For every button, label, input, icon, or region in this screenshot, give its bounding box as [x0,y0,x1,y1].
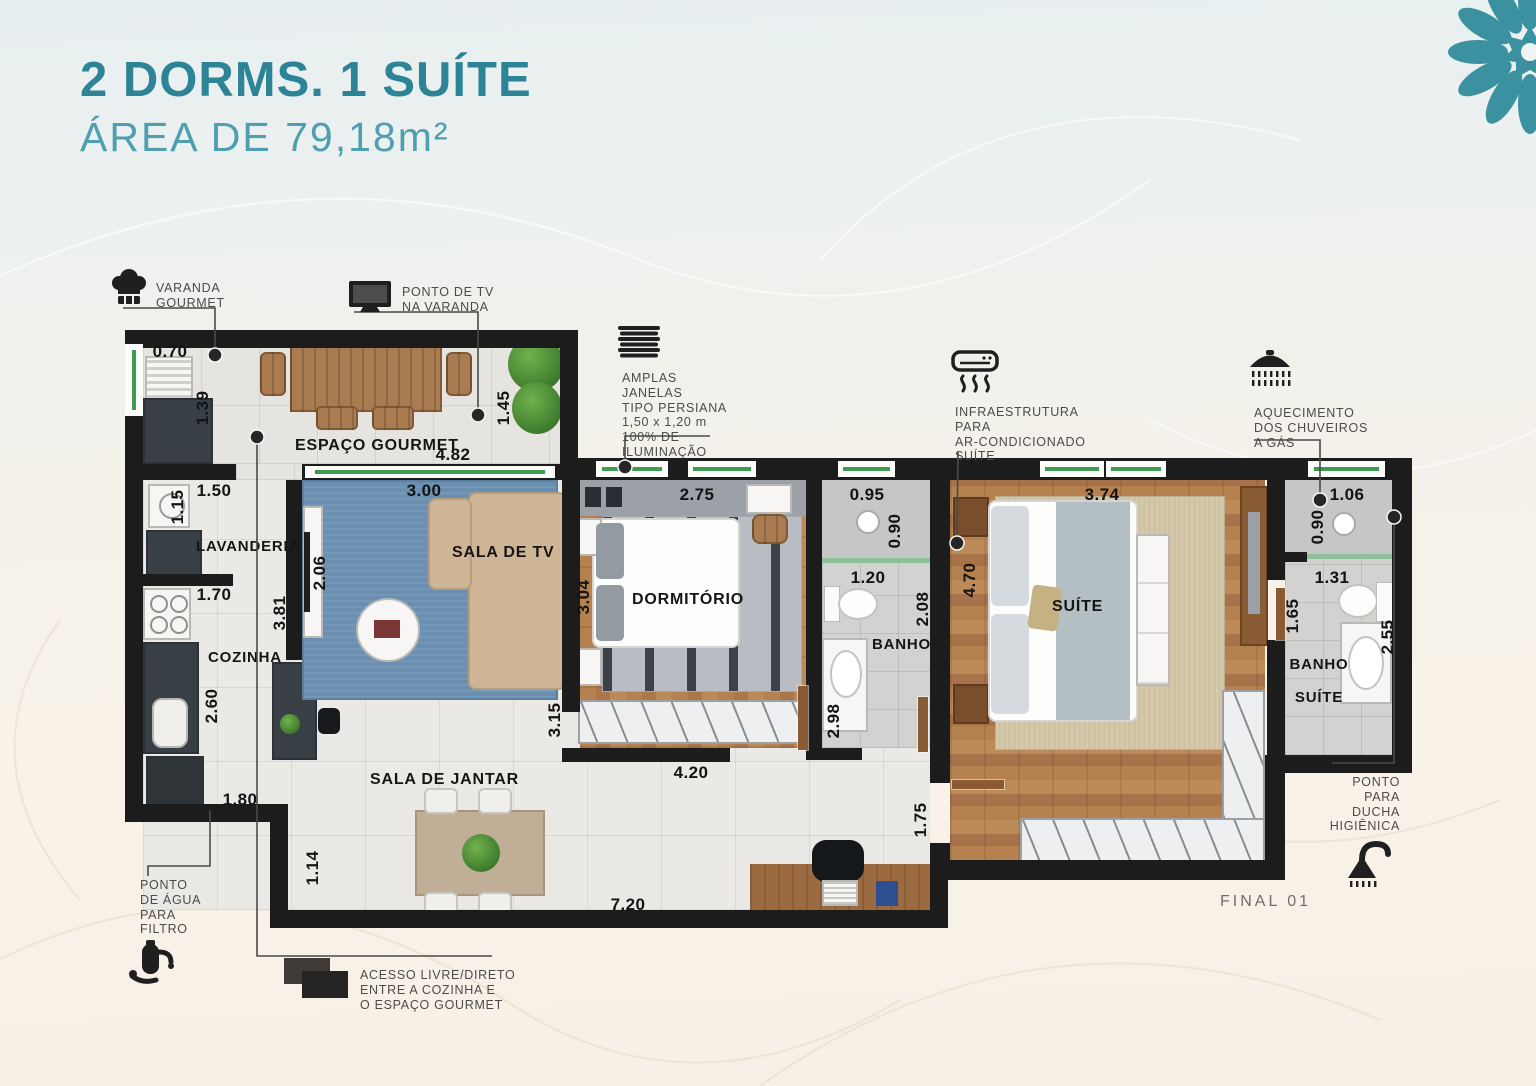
dim-1-31: 1.31 [1315,568,1350,588]
callout-line: VARANDA [156,281,225,296]
window-banho-suite [1308,461,1385,477]
callout-line: 100% DE [622,430,727,445]
suite-tv [1248,512,1260,614]
door-banho [918,697,928,752]
table-plant [462,834,500,872]
island-stool [318,708,340,734]
dim-3-74: 3.74 [1085,485,1120,505]
dorm-pillow [596,585,624,641]
dim-2-75: 2.75 [680,485,715,505]
burner [170,595,188,613]
callout-line: GOURMET [156,296,225,311]
gourmet-table [290,342,442,412]
callout-line: HIGIÊNICA [1316,819,1400,834]
dim-0-90-banho: 0.90 [885,514,905,549]
wall-suite-left-upper [930,458,950,783]
callout-infra-ar: INFRAESTRUTURA PARA AR-CONDICIONADO SUÍT… [955,405,1086,464]
label-dormitorio: DORMITÓRIO [632,591,744,609]
suite-nightstand [953,684,989,724]
magazine [374,620,400,638]
dim-1-45: 1.45 [494,391,514,426]
window-dormitorio-1 [596,461,668,477]
bsuite-toilet [1338,584,1378,618]
door-dormitorio [798,686,808,750]
suite-bench [1136,534,1170,686]
burner [150,595,168,613]
dim-3-81: 3.81 [270,596,290,631]
label-banho-suite-line2: SUÍTE [1284,681,1354,714]
callout-line: FILTRO [140,922,201,937]
hand-shower-icon [1342,838,1394,888]
label-banho: BANHO [872,636,931,653]
dim-0-95: 0.95 [850,485,885,505]
dim-1-14: 1.14 [303,851,323,886]
final-label: FINAL 01 [1220,893,1311,911]
wall-dorm-bottom [562,748,730,762]
callout-line: A GÁS [1254,436,1368,451]
dorm-panel [585,487,601,507]
callout-line: INFRAESTRUTURA [955,405,1086,420]
dim-2-08: 2.08 [913,592,933,627]
wall-suite-bottom [930,860,1285,880]
dim-4-82: 4.82 [436,445,471,465]
wall-bsuite-left-lower [1267,640,1285,773]
dim-2-55: 2.55 [1378,620,1398,655]
water-filter-icon [126,938,180,986]
label-sala-jantar: SALA DE JANTAR [370,771,519,789]
page-title: 2 DORMS. 1 SUÍTE [80,52,532,108]
dorm-chair [752,514,788,544]
callout-line: SUÍTE [955,449,1086,464]
callout-line: NA VARANDA [402,300,494,315]
callout-line: PONTO DE TV [402,285,494,300]
wall-varanda-right [560,330,578,480]
callout-aquecimento: AQUECIMENTO DOS CHUVEIROS A GÁS [1254,406,1368,450]
label-lavanderia: LAVANDERIA [196,538,300,555]
label-banho-suite: BANHO SUÍTE [1284,648,1354,714]
suite-nightstand [953,497,989,537]
callout-amplas-janelas: AMPLAS JANELAS TIPO PERSIANA 1,50 x 1,20… [622,371,727,460]
wall-right [1392,458,1412,773]
grill [145,356,193,400]
callout-line: PARA [140,908,201,923]
callout-line: AQUECIMENTO [1254,406,1368,421]
chef-hat-icon [110,268,148,308]
window-suite-2 [1106,461,1166,477]
callout-line: ILUMINAÇÃO [622,445,727,460]
gourmet-chair [260,352,286,396]
laptop [822,880,858,906]
plant-varanda [512,382,562,434]
callout-ponto-tv: PONTO DE TV NA VARANDA [402,285,494,315]
dim-2-60: 2.60 [202,689,222,724]
banho-toilet [838,588,878,620]
office-chair [812,840,864,882]
dim-1-06: 1.06 [1330,485,1365,505]
brand-flower-logo [1380,0,1536,170]
label-espaco-gourmet: ESPAÇO GOURMET [295,437,459,455]
wall-bsuite-glass-stub [1285,552,1307,562]
suite-pillow [991,614,1029,714]
dim-4-70: 4.70 [960,563,980,598]
wall-tv [286,480,302,660]
banho-shower-head [856,510,880,534]
callout-line: PARA [955,420,1086,435]
callout-line: ACESSO LIVRE/DIRETO [360,968,515,983]
wall-bottom-main [270,910,948,928]
dorm-wardrobe [578,700,806,744]
window-left-wall [125,344,143,416]
wall-banho-left [806,480,822,760]
callout-line: AR-CONDICIONADO [955,435,1086,450]
dining-chair [478,788,512,814]
shower-head-icon [1246,350,1294,394]
suite-pillow [991,506,1029,606]
callout-line: PONTO [140,878,201,893]
callout-line: AMPLAS [622,371,727,386]
banho-glass [822,558,930,563]
page-subtitle: ÁREA DE 79,18m² [80,114,450,161]
dim-7-20: 7.20 [611,895,646,915]
window-banho [838,461,895,477]
callout-ducha: PONTO PARA DUCHA HIGIÊNICA [1316,775,1400,834]
label-suite: SUÍTE [1052,598,1103,616]
callout-acesso: ACESSO LIVRE/DIRETO ENTRE A COZINHA E O … [360,968,515,1012]
dim-3-04: 3.04 [574,580,594,615]
label-cozinha: COZINHA [208,649,282,666]
banho-basin [830,650,862,698]
callout-line: PARA [1316,790,1400,805]
island-plant [280,714,300,734]
window-dormitorio-2 [688,461,756,477]
opening-cozinha-gourmet [236,464,302,480]
callout-varanda-gourmet: VARANDA GOURMET [156,281,225,311]
burner [150,616,168,634]
dim-1-65: 1.65 [1283,599,1303,634]
suite-wardrobe-bottom [1020,818,1265,862]
callout-line: O ESPAÇO GOURMET [360,998,515,1013]
dim-1-75: 1.75 [911,803,931,838]
air-conditioner-icon [951,350,999,394]
dim-1-50: 1.50 [197,481,232,501]
wall-banho-bottom [812,748,862,760]
dim-3-00: 3.00 [407,481,442,501]
callout-agua-filtro: PONTO DE ÁGUA PARA FILTRO [140,878,201,937]
burner [170,616,188,634]
sofa [468,492,566,690]
dim-3-15: 3.15 [545,703,565,738]
kitchen-sink [152,698,188,748]
wall-kitchen-bottom [125,804,285,822]
free-access-icon [284,958,350,1002]
dim-0-90-bsuite: 0.90 [1308,510,1328,545]
callout-line: DE ÁGUA [140,893,201,908]
dim-1-15: 1.15 [168,490,188,525]
dorm-pillow [596,523,624,579]
callout-line: TIPO PERSIANA [622,401,727,416]
callout-line: ENTRE A COZINHA E [360,983,515,998]
laundry-cabinet [146,530,202,576]
callout-line: 1,50 x 1,20 m [622,415,727,430]
wall-bsuite-bottom [1265,755,1412,773]
dim-4-20: 4.20 [674,763,709,783]
door-suite [952,780,1004,789]
callout-line: JANELAS [622,386,727,401]
callout-line: PONTO [1316,775,1400,790]
dim-1-80: 1.80 [223,790,258,810]
dim-1-70: 1.70 [197,585,232,605]
label-sala-tv: SALA DE TV [452,544,555,562]
gourmet-bench [372,406,414,430]
floor-plan: ESPAÇO GOURMET LAVANDERIA COZINHA SALA D… [0,0,1536,1086]
dim-1-20: 1.20 [851,568,886,588]
dorm-desk [746,484,792,514]
wall-varanda-top [125,330,578,348]
dim-0-70: 0.70 [153,342,188,362]
wall-bsuite-left-upper [1267,480,1285,580]
dorm-panel [606,487,622,507]
dim-2-06: 2.06 [310,556,330,591]
gourmet-chair [446,352,472,396]
callout-line: DOS CHUVEIROS [1254,421,1368,436]
wall-suite-right [1265,755,1285,880]
bsuite-shower-head [1332,512,1356,536]
blue-book [876,881,898,906]
dining-chair [424,788,458,814]
gourmet-bench [316,406,358,430]
wall-suite-left-lower [930,843,950,873]
tv-icon [348,280,392,314]
label-banho-suite-line1: BANHO [1284,648,1354,681]
dim-1-39: 1.39 [193,391,213,426]
window-varanda-slider [305,466,555,478]
fridge [146,756,204,806]
callout-line: DUCHA [1316,805,1400,820]
blinds-icon [618,326,660,358]
dim-2-98: 2.98 [824,704,844,739]
